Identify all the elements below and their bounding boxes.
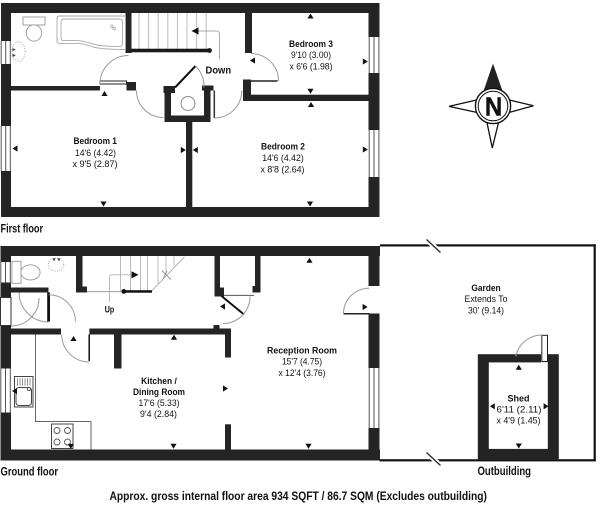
svg-text:x 12'4 (3.76): x 12'4 (3.76) xyxy=(279,368,326,378)
svg-text:Dining Room: Dining Room xyxy=(133,387,185,397)
svg-text:30' (9.14): 30' (9.14) xyxy=(468,306,504,316)
svg-text:Garden: Garden xyxy=(471,283,500,293)
svg-text:Shed: Shed xyxy=(508,394,530,404)
svg-text:9'4 (2.84): 9'4 (2.84) xyxy=(140,409,177,419)
svg-text:Outbuilding: Outbuilding xyxy=(478,464,532,478)
svg-text:Extends To: Extends To xyxy=(465,294,508,304)
svg-text:Down: Down xyxy=(206,64,232,76)
svg-text:x 4'9 (1.45): x 4'9 (1.45) xyxy=(497,416,541,426)
svg-text:14'6 (4.42): 14'6 (4.42) xyxy=(262,153,304,163)
svg-text:15'7 (4.75): 15'7 (4.75) xyxy=(282,357,322,367)
svg-text:17'6 (5.33): 17'6 (5.33) xyxy=(139,398,180,408)
svg-text:x 9'5 (2.87): x 9'5 (2.87) xyxy=(73,159,118,169)
svg-text:Bedroom 3: Bedroom 3 xyxy=(289,39,333,49)
svg-text:6'11 (2.11): 6'11 (2.11) xyxy=(497,405,542,415)
svg-text:9'10 (3.00): 9'10 (3.00) xyxy=(291,50,331,60)
svg-text:14'6 (4.42): 14'6 (4.42) xyxy=(75,148,116,158)
svg-text:First floor: First floor xyxy=(1,222,44,236)
svg-text:Kitchen /: Kitchen / xyxy=(141,376,177,386)
svg-text:x 6'6 (1.98): x 6'6 (1.98) xyxy=(290,61,333,71)
svg-text:x 8'8 (2.64): x 8'8 (2.64) xyxy=(261,165,305,175)
svg-text:Bedroom 1: Bedroom 1 xyxy=(73,136,117,146)
svg-text:Reception Room: Reception Room xyxy=(267,346,337,356)
svg-text:Ground floor: Ground floor xyxy=(1,465,59,479)
svg-text:Approx. gross internal floor a: Approx. gross internal floor area 934 SQ… xyxy=(109,489,487,503)
svg-text:Bedroom 2: Bedroom 2 xyxy=(261,142,305,152)
svg-text:Up: Up xyxy=(105,304,115,315)
